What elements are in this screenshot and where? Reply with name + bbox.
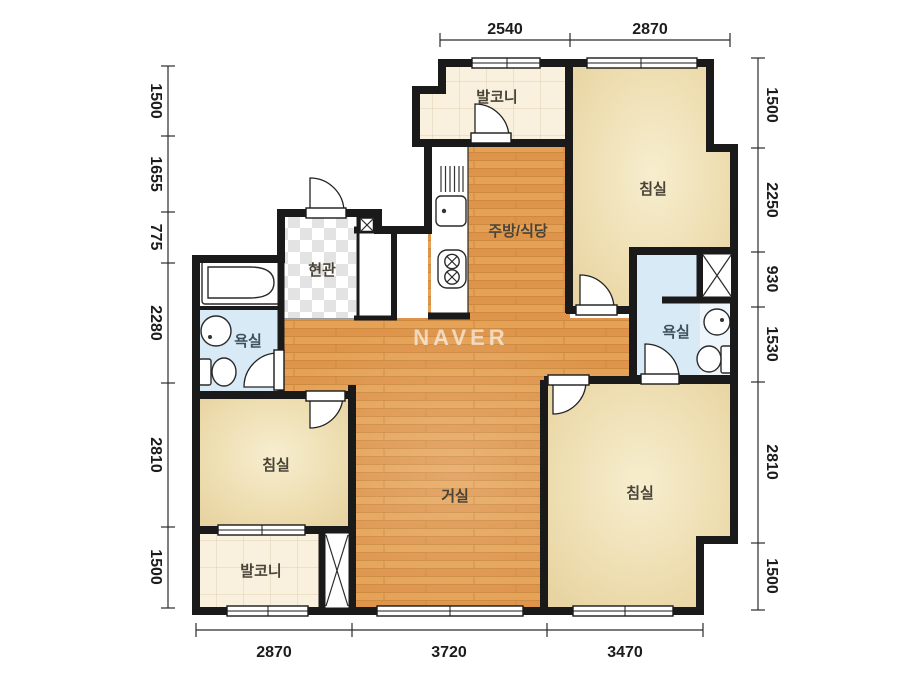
dim-left-2810: 2810: [147, 437, 164, 473]
naver-watermark: NAVER: [413, 325, 508, 350]
dim-left-775: 775: [147, 224, 164, 251]
dim-bottom-3720: 3720: [431, 644, 467, 661]
window-icon: [587, 58, 697, 68]
bathtub-inner: [208, 267, 274, 298]
room-label-bedroom-bottom-right: 침실: [626, 485, 654, 502]
sink-drain: [720, 318, 724, 322]
dim-right-1500a: 1500: [763, 87, 780, 123]
window-icon: [573, 606, 673, 616]
dim-top-2870: 2870: [632, 21, 668, 38]
room-label-balcony-top: 발코니: [476, 89, 517, 106]
dim-right-1500b: 1500: [763, 558, 780, 594]
window-icon: [377, 606, 523, 616]
kitchen-counter: [431, 147, 468, 315]
dim-top-2540: 2540: [487, 21, 523, 38]
toilet-icon: [199, 358, 236, 386]
round-sink-icon: [201, 316, 231, 346]
sink-drain: [208, 335, 212, 339]
duct-x-icon: [360, 218, 375, 233]
dim-left-1500a: 1500: [147, 83, 164, 119]
stove-icon: [438, 250, 466, 288]
room-label-bedroom-left: 침실: [262, 457, 290, 474]
dim-right-2250: 2250: [763, 182, 780, 218]
dim-left-1655: 1655: [147, 156, 164, 192]
room-label-entrance: 현관: [308, 262, 336, 279]
dim-bottom-2870: 2870: [256, 644, 292, 661]
window-icon: [218, 525, 305, 535]
dim-right-2810: 2810: [763, 444, 780, 480]
duct-x-icon: [326, 534, 349, 608]
room-label-bathroom-left: 욕실: [234, 333, 262, 350]
floor-plan: 발코니 침실 주방/식당 현관 욕실 욕실 침실 거실 침실 발코니 NAVER: [0, 0, 923, 676]
duct-x-icon: [703, 255, 731, 297]
entrance-closet: [361, 235, 392, 317]
room-label-bedroom-top-right: 침실: [639, 181, 667, 198]
dim-bottom-3470: 3470: [607, 644, 643, 661]
toilet-icon: [697, 346, 732, 373]
round-sink-icon: [704, 309, 730, 335]
room-label-living: 거실: [441, 488, 469, 505]
dim-left-2280: 2280: [147, 305, 164, 341]
dim-right-1530: 1530: [763, 326, 780, 362]
dim-right-930: 930: [763, 266, 780, 293]
window-icon: [227, 606, 308, 616]
kitchen-sink-drain: [442, 209, 446, 213]
kitchen-sink-icon: [436, 196, 466, 226]
floor-plan-canvas: 발코니 침실 주방/식당 현관 욕실 욕실 침실 거실 침실 발코니 NAVER: [0, 0, 923, 676]
room-label-kitchen: 주방/식당: [488, 222, 548, 240]
room-label-balcony-bottom: 발코니: [240, 563, 281, 580]
window-icon: [472, 58, 540, 68]
door-swing-icon: [306, 178, 346, 218]
room-label-bathroom-right: 욕실: [662, 324, 690, 341]
dim-left-1500b: 1500: [147, 549, 164, 585]
